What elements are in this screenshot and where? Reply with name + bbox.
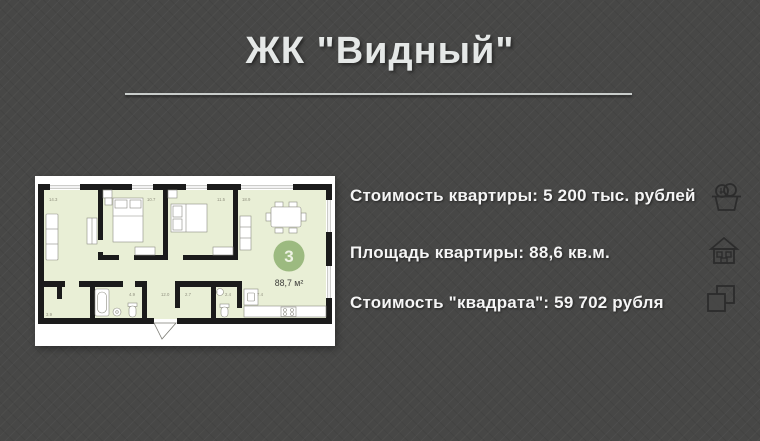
toilet: [220, 304, 229, 317]
closet-strip: [213, 247, 233, 255]
room-label: 10.7: [147, 197, 156, 202]
entrance-door: [154, 323, 176, 339]
room-count-number: 3: [284, 247, 293, 266]
room-label: 4.9: [129, 292, 136, 297]
floor-plan-card: 14.3 10.7 11.5 18.9 3.9 4.9 12.0 2.7 2.4…: [35, 176, 335, 346]
toilet: [128, 303, 137, 317]
wardrobe: [87, 218, 97, 244]
wardrobe: [240, 216, 251, 250]
floor-plan-drawing: 14.3 10.7 11.5 18.9 3.9 4.9 12.0 2.7 2.4…: [35, 176, 335, 346]
room-label: 2.4: [225, 292, 232, 297]
price-per-sqm-line: Стоимость "квадрата": 59 702 рубля: [350, 293, 710, 313]
shaft-box: [103, 190, 112, 198]
total-area-label: 88,7 м²: [275, 278, 304, 288]
sink: [216, 289, 224, 296]
room-label: 3.9: [46, 312, 53, 317]
apartment-price-line: Стоимость квартиры: 5 200 тыс. рублей: [350, 186, 710, 206]
bed: [171, 204, 207, 232]
bathtub: [95, 289, 109, 316]
room-label: 14.3: [49, 197, 58, 202]
apartment-area-line: Площадь квартиры: 88,6 кв.м.: [350, 243, 710, 263]
sofa: [46, 214, 58, 260]
closet-strip: [135, 247, 155, 255]
room-label: 12.0: [161, 292, 170, 297]
title-separator-line: [125, 93, 632, 95]
sink: [113, 308, 121, 316]
room-label: 7.4: [257, 292, 264, 297]
room-label: 2.7: [185, 292, 192, 297]
overlapping-squares-icon: [702, 281, 742, 321]
money-basket-icon: [706, 179, 746, 219]
stove: [281, 307, 296, 317]
house-icon: [704, 232, 744, 272]
kitchen-cabinet: [244, 289, 258, 305]
room-label: 11.5: [217, 197, 226, 202]
shaft-box: [168, 190, 177, 198]
page-title: ЖК "Видный": [0, 30, 760, 73]
room-label: 18.9: [242, 197, 251, 202]
